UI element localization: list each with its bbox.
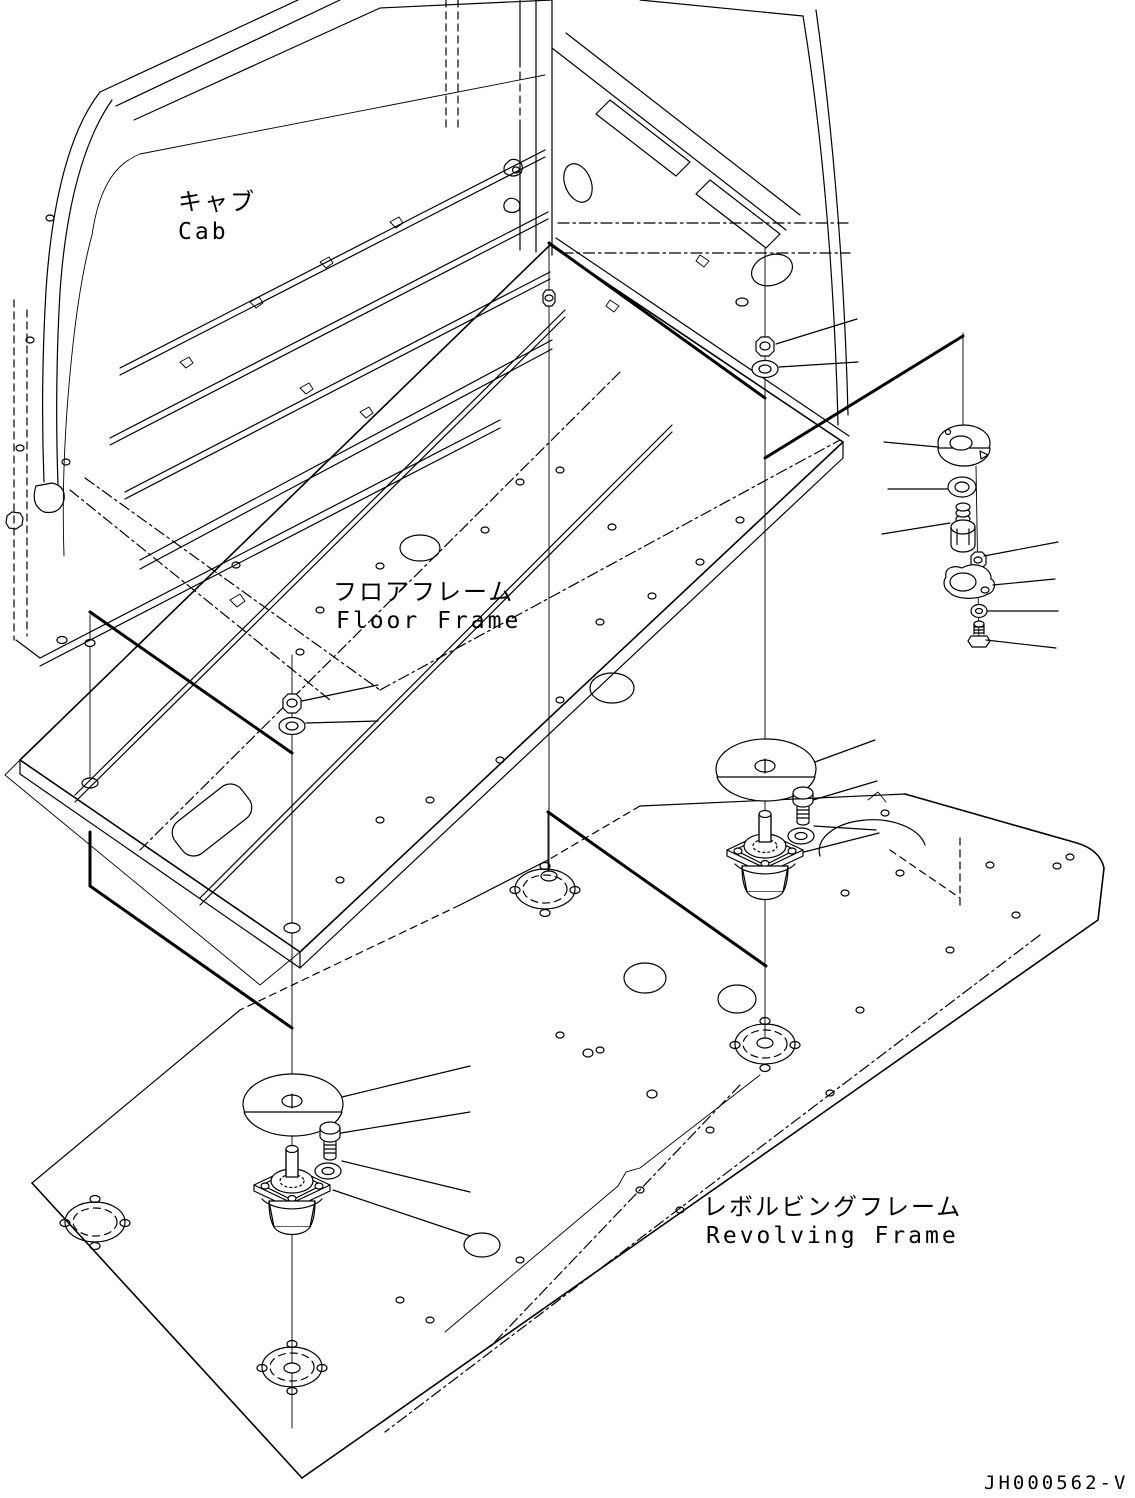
cab-mount-front: [243, 1074, 343, 1234]
center-lines: [82, 243, 979, 1428]
small-washer: [971, 605, 987, 618]
floor-frame-label-en: Floor Frame: [336, 608, 521, 634]
mount-hole-rear-left: [510, 863, 580, 917]
cab-label-en: Cab: [178, 219, 229, 245]
drawing-number: JH000562-V: [984, 1472, 1128, 1494]
mount-bolt: [951, 503, 975, 552]
revolving-frame: [32, 792, 1104, 1478]
parts-diagram-page: キャブ Cab フロアフレーム Floor Frame レボルビングフレーム R…: [0, 0, 1135, 1498]
mount-bracket: [944, 565, 995, 599]
mount-hole-front-left: [60, 1196, 130, 1250]
revolving-frame-label-jp: レボルビングフレーム: [703, 1193, 962, 1221]
washer: [948, 477, 976, 497]
floor-frame-label-jp: フロアフレーム: [333, 578, 514, 606]
cab-label-jp: キャブ: [178, 188, 256, 216]
floor-bolt-holes: [232, 467, 744, 883]
mount-hardware-stack: [938, 425, 995, 647]
cab-mount-rear: [716, 739, 816, 899]
exploded-parts-diagram: キャブ Cab フロアフレーム Floor Frame レボルビングフレーム R…: [0, 0, 1135, 1498]
revolving-frame-label-en: Revolving Frame: [706, 1223, 959, 1249]
mount-cap: [938, 425, 990, 466]
